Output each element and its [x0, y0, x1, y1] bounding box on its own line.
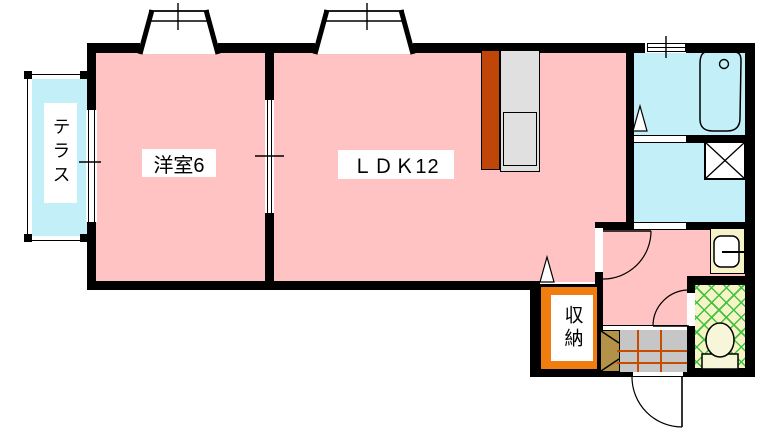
terrace-window-glass [88, 110, 95, 222]
bathroom-door-opening [634, 135, 686, 143]
terrace-label: テラス [44, 103, 77, 203]
bay-window-western [140, 3, 218, 54]
fence-post [24, 71, 32, 79]
kitchen-counter-edge [481, 50, 500, 170]
room-washroom [634, 142, 745, 224]
western-room-label: 洋室6 [142, 149, 216, 177]
shoe-cabinet [600, 330, 620, 372]
sliding-door-glass [267, 100, 272, 213]
storage-label: 収納 [551, 295, 593, 361]
floor-plan: テラス 洋室6 ＬＤＫ12 収納 [0, 0, 764, 434]
hall-door-opening [595, 228, 603, 272]
entrance-tile-floor [617, 330, 687, 372]
kitchen-sink [503, 112, 537, 166]
fence-post [24, 234, 32, 242]
bathroom-window [647, 43, 686, 52]
washroom-door-opening [634, 222, 686, 230]
bay-window-ldk [315, 3, 413, 54]
wall-toilet-top [687, 276, 745, 285]
wall-right [745, 43, 755, 377]
ldk-label: ＬＤＫ12 [338, 150, 454, 179]
front-door-swing [632, 377, 682, 427]
room-toilet [693, 284, 745, 372]
wall-bottom-left [87, 281, 540, 290]
washbasin-unit [710, 228, 745, 274]
toilet-door-opening [687, 293, 695, 326]
room-bathroom [634, 53, 745, 136]
wall-ldk-right [626, 43, 634, 230]
